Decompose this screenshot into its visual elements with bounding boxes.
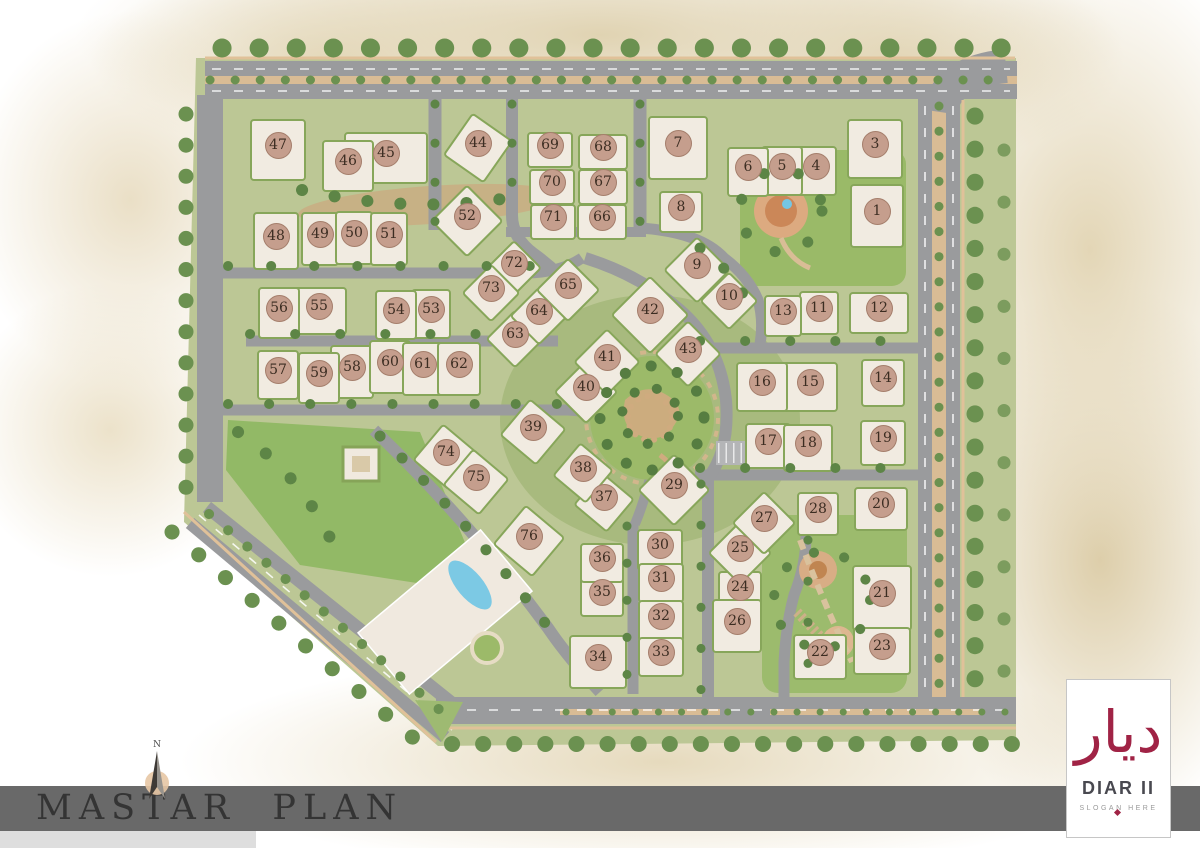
plan-title: MASTAR PLAN: [36, 786, 403, 831]
building-footprint-33: [640, 639, 682, 675]
building-footprint-14: [863, 361, 903, 405]
building-footprint-26: [714, 601, 760, 651]
compass-arrow-icon: [136, 741, 178, 807]
building-footprint-59: [300, 354, 338, 402]
building-footprint-46: [324, 142, 372, 190]
building-footprint-3: [849, 121, 901, 177]
building-footprint-17: [747, 425, 789, 467]
building-footprint-62: [439, 344, 479, 394]
building-footprint-32: [640, 602, 682, 640]
building-footprint-11: [801, 293, 837, 333]
developer-logo-card: ديار DIAR II SLOGAN HERE: [1066, 679, 1171, 838]
building-footprint-69: [529, 134, 571, 166]
title-banner: MASTAR PLAN: [0, 786, 1200, 831]
building-footprint-71: [532, 206, 574, 238]
building-footprint-23: [855, 629, 909, 673]
banner-substrip: [0, 831, 256, 848]
building-footprint-61: [404, 344, 442, 394]
logo-brand-name: DIAR II: [1067, 778, 1170, 799]
north-compass: N: [136, 741, 178, 807]
building-footprint-50: [337, 213, 371, 263]
building-footprint-67: [580, 171, 626, 203]
building-footprint-31: [640, 565, 682, 601]
round-courtyard: [472, 633, 502, 663]
building-footprint-13: [766, 297, 800, 335]
building-footprint-35: [582, 579, 622, 615]
building-footprint-55: [293, 289, 345, 333]
building-footprint-47: [252, 121, 304, 179]
building-footprint-70: [531, 171, 573, 203]
building-footprint-8: [661, 193, 701, 231]
building-footprint-51: [372, 214, 406, 264]
site-plan-drawing: [0, 0, 1200, 848]
building-footprint-34: [571, 637, 625, 687]
compass-north-label: N: [153, 740, 161, 750]
building-footprint-48: [255, 214, 297, 268]
building-footprint-28: [799, 494, 837, 534]
building-footprint-19: [862, 422, 904, 464]
building-footprint-56: [260, 289, 298, 337]
building-footprint-7: [650, 118, 706, 178]
building-footprint-16: [738, 364, 786, 410]
building-footprint-36: [582, 545, 622, 581]
building-footprint-68: [580, 136, 626, 168]
building-footprint-20: [856, 489, 906, 529]
building-footprint-15: [784, 364, 836, 410]
master-plan-canvas: 1345678910111213141516171819202122232425…: [0, 0, 1200, 848]
building-footprint-1: [852, 186, 902, 246]
building-footprint-57: [259, 352, 297, 398]
building-footprint-49: [303, 214, 337, 264]
building-footprint-66: [579, 206, 625, 238]
logo-arabic-calligraphy: ديار: [1067, 680, 1170, 778]
building-footprint-12: [851, 294, 907, 332]
